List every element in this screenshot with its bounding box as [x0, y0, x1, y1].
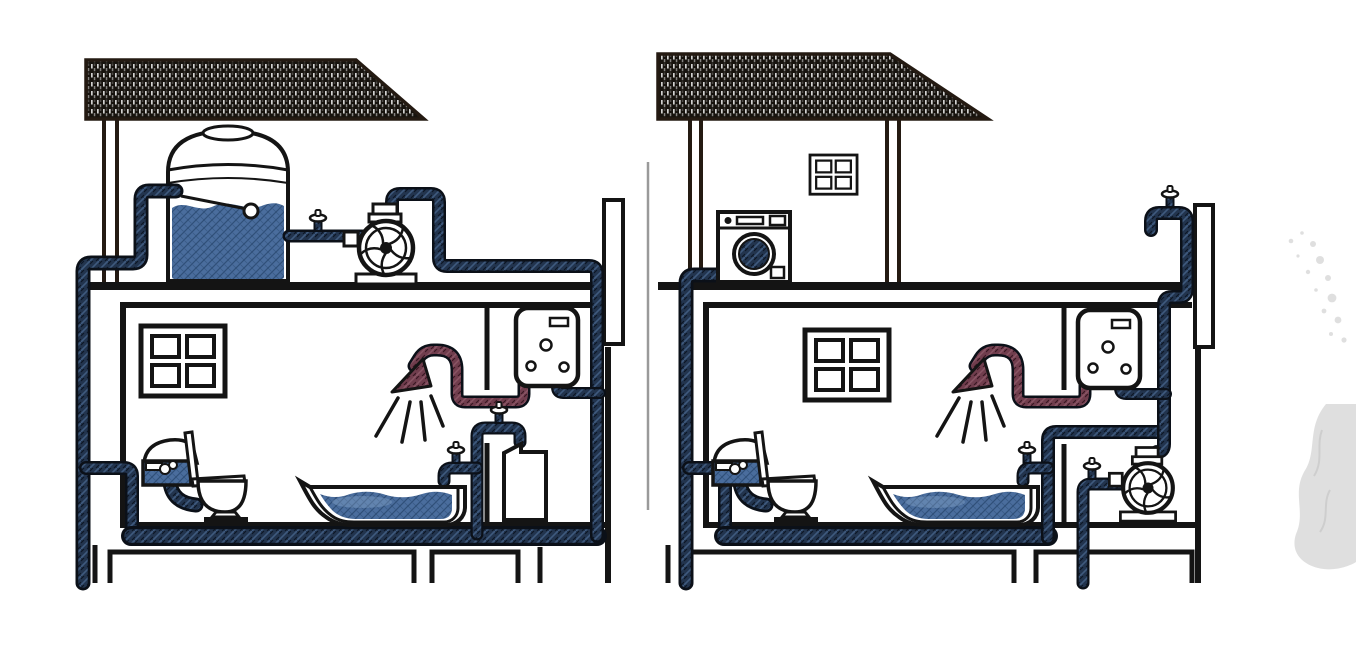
left-gate-valve — [310, 210, 326, 231]
left-roof — [86, 60, 424, 119]
right-bathroom-window — [805, 330, 889, 400]
left-house-overhead-tank-system — [83, 60, 623, 583]
left-tub-faucet-handle — [448, 442, 464, 463]
right-vent-standpipe — [1195, 205, 1213, 347]
right-roof — [658, 54, 988, 119]
left-lower-floor-walls — [95, 545, 540, 583]
right-bathtub — [873, 481, 1038, 525]
splash-blob — [1294, 404, 1356, 569]
right-washing-machine — [718, 212, 790, 282]
right-rooftop-tap-handle — [1162, 186, 1178, 207]
right-attic-window — [810, 155, 857, 194]
right-pump-isolation-valve — [1084, 458, 1100, 479]
left-attic-floor — [88, 282, 612, 290]
left-bathroom-window — [141, 326, 225, 396]
left-toilet — [143, 432, 248, 523]
left-bathtub — [300, 481, 465, 525]
right-water-heater — [1078, 310, 1140, 388]
right-inline-pump — [1109, 448, 1175, 522]
right-tub-faucet-handle — [1019, 442, 1035, 463]
water-splash-watermark — [1289, 231, 1356, 569]
splash-droplets — [1289, 231, 1347, 342]
left-vent-standpipe — [604, 200, 623, 344]
right-lower-floor-walls — [668, 545, 1192, 583]
left-water-heater — [516, 308, 578, 386]
left-wash-basin — [504, 444, 546, 520]
plumbing-comparison-illustration — [0, 0, 1356, 646]
diagram-canvas — [0, 0, 1356, 646]
right-house-direct-pump-system — [658, 54, 1213, 583]
left-booster-pump — [344, 204, 416, 284]
